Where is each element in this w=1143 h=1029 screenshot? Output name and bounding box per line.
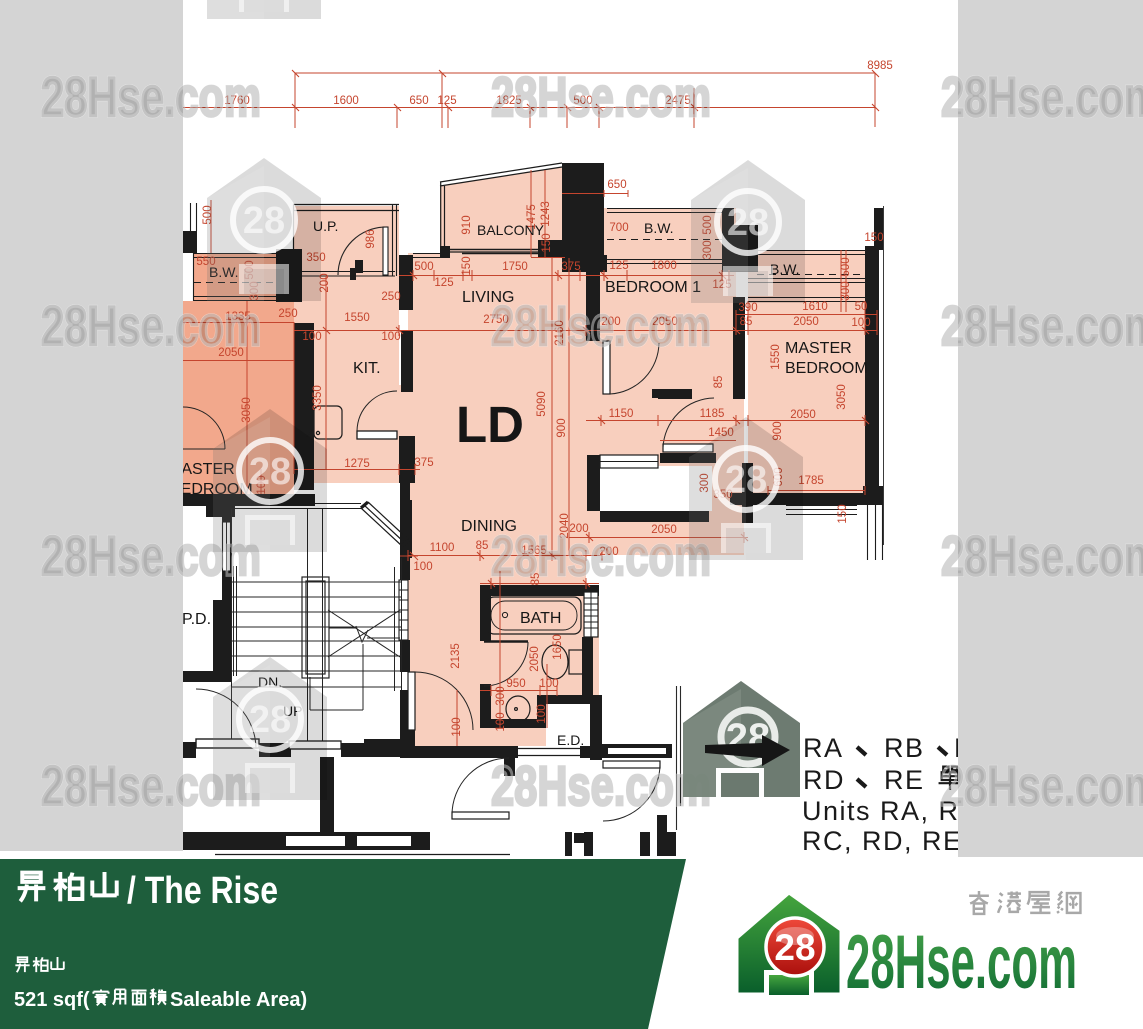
- svg-text:100: 100: [451, 717, 463, 736]
- svg-text:28Hse.com: 28Hse.com: [846, 920, 1077, 1005]
- svg-text:50: 50: [855, 301, 868, 313]
- svg-text:650: 650: [607, 179, 626, 191]
- svg-text:RD: RD: [803, 765, 845, 795]
- svg-text:85: 85: [713, 376, 725, 389]
- svg-text:3050: 3050: [836, 384, 848, 410]
- svg-text:1275: 1275: [344, 458, 370, 470]
- svg-text:125: 125: [437, 95, 456, 107]
- svg-text:100: 100: [539, 678, 558, 690]
- svg-text:100: 100: [536, 704, 548, 723]
- svg-text:986: 986: [365, 229, 377, 248]
- svg-text:300: 300: [840, 281, 852, 300]
- svg-text:B.W.: B.W.: [644, 220, 674, 236]
- svg-text:125: 125: [434, 277, 453, 289]
- svg-text:P.D.: P.D.: [182, 611, 211, 628]
- svg-text:2135: 2135: [450, 643, 462, 669]
- svg-text:5090: 5090: [536, 391, 548, 417]
- svg-text:BEDROOM: BEDROOM: [785, 360, 868, 377]
- svg-text:1600: 1600: [333, 95, 359, 107]
- svg-text:28: 28: [774, 927, 815, 968]
- svg-text:1650: 1650: [552, 634, 564, 660]
- svg-text:2050: 2050: [529, 646, 541, 672]
- svg-text:MASTER: MASTER: [785, 340, 852, 357]
- svg-text:500: 500: [414, 261, 433, 273]
- svg-text:KIT.: KIT.: [353, 360, 381, 377]
- svg-text:250: 250: [278, 308, 297, 320]
- svg-text:1550: 1550: [770, 344, 782, 370]
- svg-text:3050: 3050: [241, 397, 253, 423]
- svg-text:2050: 2050: [793, 316, 819, 328]
- svg-text:100: 100: [851, 317, 870, 329]
- svg-text:150: 150: [837, 504, 849, 523]
- svg-text:1800: 1800: [651, 260, 677, 272]
- svg-text:100: 100: [495, 712, 507, 731]
- svg-text:8985: 8985: [867, 60, 893, 72]
- svg-text:1550: 1550: [344, 312, 370, 324]
- svg-text:RE: RE: [884, 765, 925, 795]
- svg-text:BATH: BATH: [520, 610, 561, 627]
- svg-text:Saleable Area): Saleable Area): [170, 989, 307, 1011]
- svg-text:375: 375: [414, 457, 433, 469]
- svg-text:E.D.: E.D.: [557, 732, 584, 748]
- svg-text:950: 950: [506, 678, 525, 690]
- svg-text:125: 125: [609, 260, 628, 272]
- svg-text:85: 85: [740, 316, 753, 328]
- svg-text:500: 500: [840, 257, 852, 276]
- svg-text:2050: 2050: [790, 409, 816, 421]
- svg-text:100: 100: [302, 331, 321, 343]
- svg-text:RC, RD, RE: RC, RD, RE: [802, 826, 963, 856]
- svg-text:/ The Rise: / The Rise: [127, 870, 278, 912]
- svg-text:650: 650: [409, 95, 428, 107]
- svg-text:1185: 1185: [700, 408, 725, 420]
- svg-text:1610: 1610: [802, 301, 828, 313]
- svg-text:100: 100: [413, 561, 432, 573]
- svg-text:150: 150: [461, 256, 473, 275]
- svg-text:3350: 3350: [312, 385, 324, 411]
- svg-text:1150: 1150: [609, 408, 634, 420]
- svg-text:150: 150: [864, 232, 883, 244]
- svg-text:1100: 1100: [430, 542, 455, 554]
- svg-text:100: 100: [381, 331, 400, 343]
- svg-text:BALCONY: BALCONY: [477, 222, 545, 238]
- svg-text:375: 375: [561, 261, 580, 273]
- svg-text:1750: 1750: [502, 261, 528, 273]
- svg-text:521 sqf(: 521 sqf(: [14, 989, 90, 1011]
- svg-text:RB: RB: [884, 733, 925, 763]
- svg-text:390: 390: [738, 302, 757, 314]
- svg-text:300: 300: [495, 686, 507, 705]
- svg-text:RA: RA: [803, 733, 844, 763]
- svg-text:900: 900: [556, 418, 568, 437]
- svg-text:85: 85: [476, 540, 489, 552]
- svg-text:910: 910: [461, 215, 473, 234]
- svg-text:250: 250: [381, 291, 400, 303]
- svg-text:700: 700: [609, 222, 628, 234]
- svg-text:LD: LD: [456, 396, 524, 453]
